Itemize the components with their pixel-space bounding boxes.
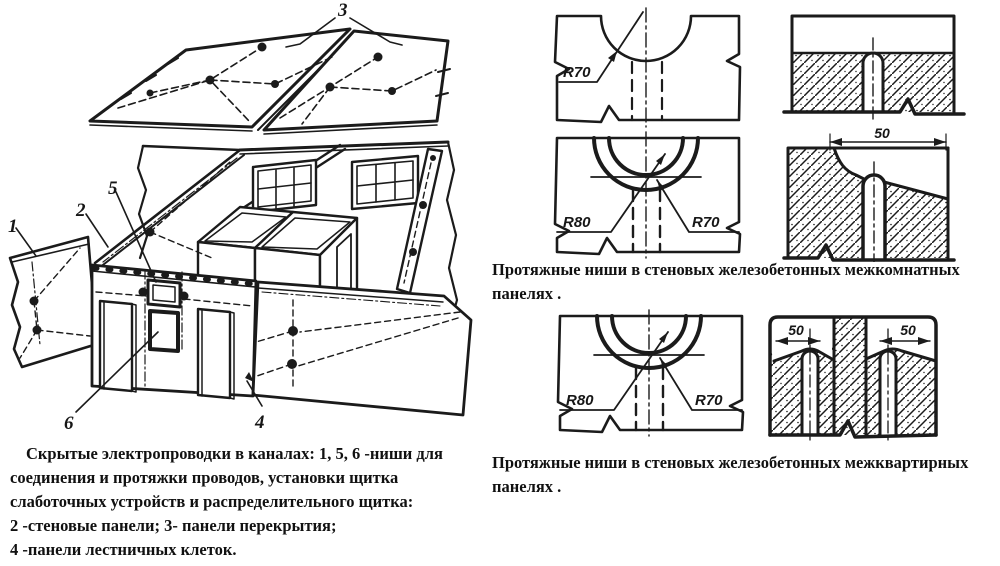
axonometric-wiring-drawing: 3 xyxy=(0,0,495,440)
diagram-channel-section xyxy=(782,8,967,126)
door-opening xyxy=(198,309,230,398)
label-3: 3 xyxy=(337,0,348,21)
caption-interroom: Протяжные ниши в стеновых железобетонных… xyxy=(492,258,997,306)
label-5: 5 xyxy=(108,178,118,199)
caption-interapartment: Протяжные ниши в стеновых железобетонных… xyxy=(492,451,997,499)
front-wall-panel xyxy=(92,265,256,399)
dimension-50-label: 50 xyxy=(874,125,890,141)
dimension-r70: R70 xyxy=(692,214,720,231)
dimension-50-left-label: 50 xyxy=(788,322,804,338)
diagram-double-channel: 50 50 xyxy=(762,309,944,445)
diagram-niche-r80-r70-bottom: R80 R70 xyxy=(546,308,756,438)
dimension-r80: R80 xyxy=(563,214,591,231)
door-opening xyxy=(100,301,132,391)
ceiling-panels xyxy=(90,29,450,134)
dimension-r80: R80 xyxy=(566,392,594,409)
diagram-channel-50: 50 xyxy=(778,122,963,262)
diagram-niche-r80-r70-top: R80 R70 xyxy=(543,130,753,260)
main-caption: Скрытые электропроводки в каналах: 1, 5,… xyxy=(10,442,488,562)
label-6: 6 xyxy=(64,413,74,434)
wall-panel-1 xyxy=(10,237,97,367)
label-4: 4 xyxy=(254,412,265,433)
concrete-hatch xyxy=(834,317,866,435)
window xyxy=(352,156,418,209)
diagram-niche-r70: R70 xyxy=(543,6,753,130)
dimension-r70: R70 xyxy=(695,392,723,409)
window xyxy=(253,160,316,212)
wall-panel-4 xyxy=(253,282,471,415)
scanned-technical-figure: 3 xyxy=(0,0,1000,566)
label-1: 1 xyxy=(8,216,18,237)
label-2: 2 xyxy=(75,200,86,221)
niche-6 xyxy=(150,311,178,351)
dimension-50-right-label: 50 xyxy=(900,322,916,338)
dimension-r70: R70 xyxy=(563,64,591,81)
